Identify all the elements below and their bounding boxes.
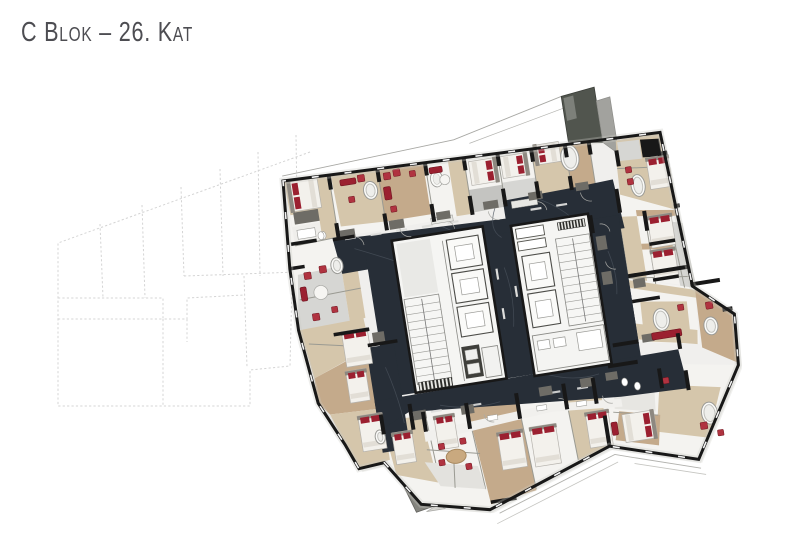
svg-text:C Blok – 26. Kat: C Blok – 26. Kat [21,16,193,47]
